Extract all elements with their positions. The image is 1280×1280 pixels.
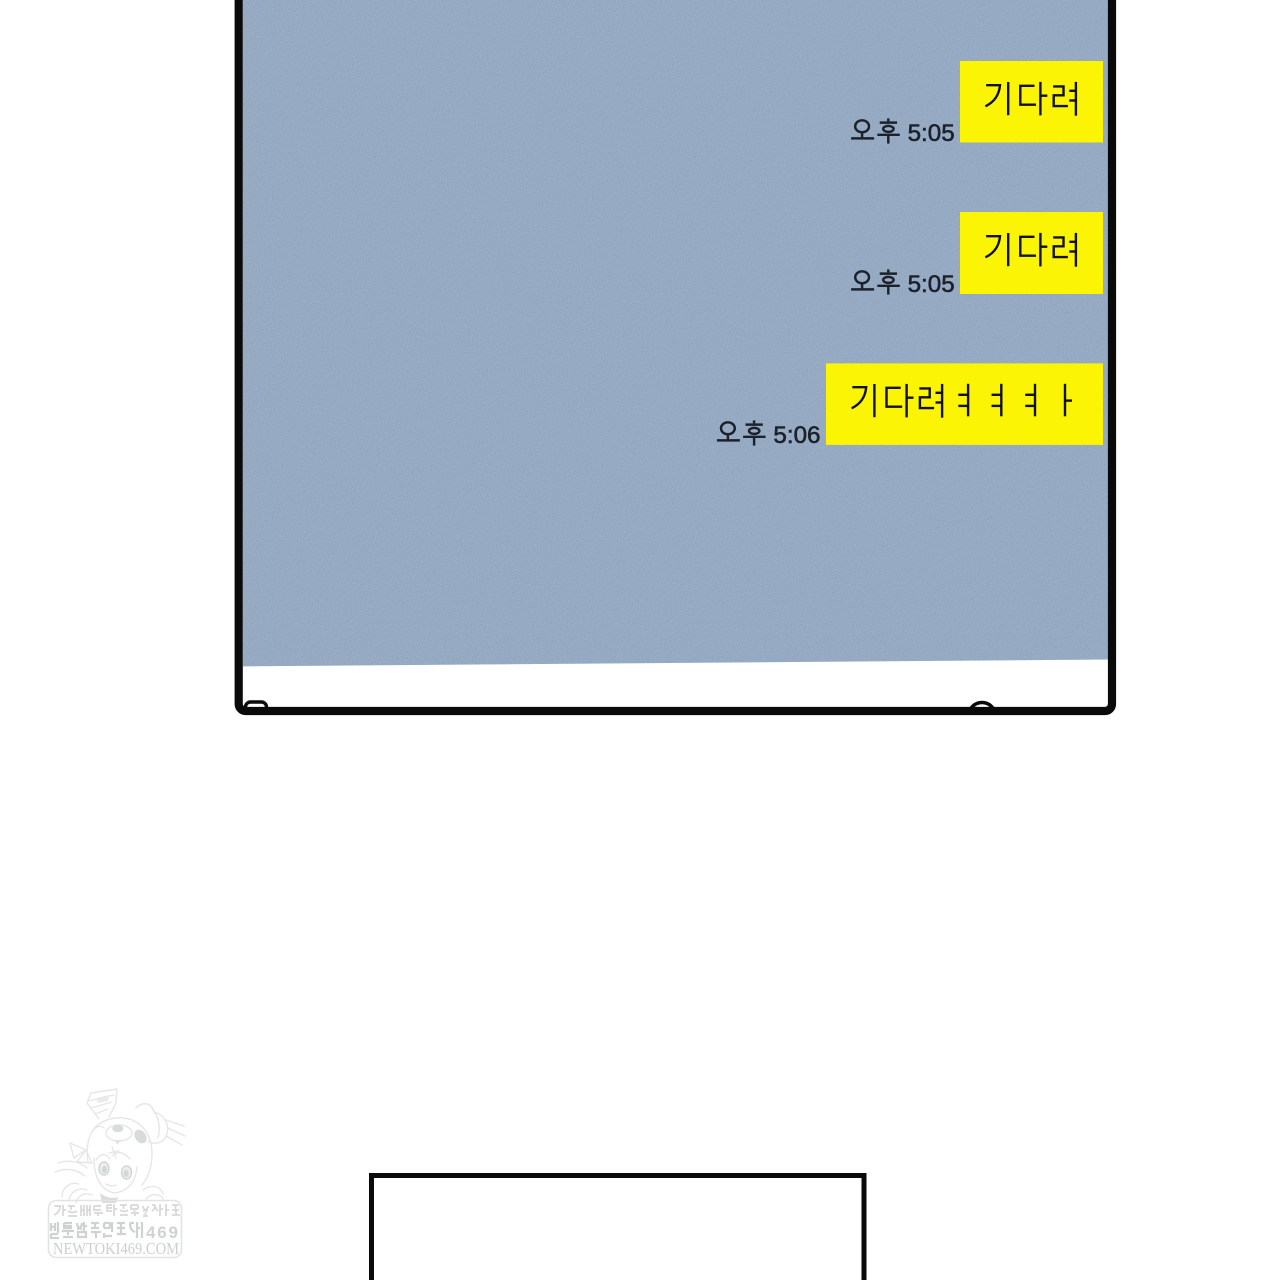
svg-text:5:05: 5:05 bbox=[908, 271, 955, 298]
svg-text:5:06: 5:06 bbox=[773, 422, 820, 449]
svg-text:NEWTOKI469.COM: NEWTOKI469.COM bbox=[53, 1239, 179, 1258]
svg-text:5:05: 5:05 bbox=[908, 120, 955, 147]
